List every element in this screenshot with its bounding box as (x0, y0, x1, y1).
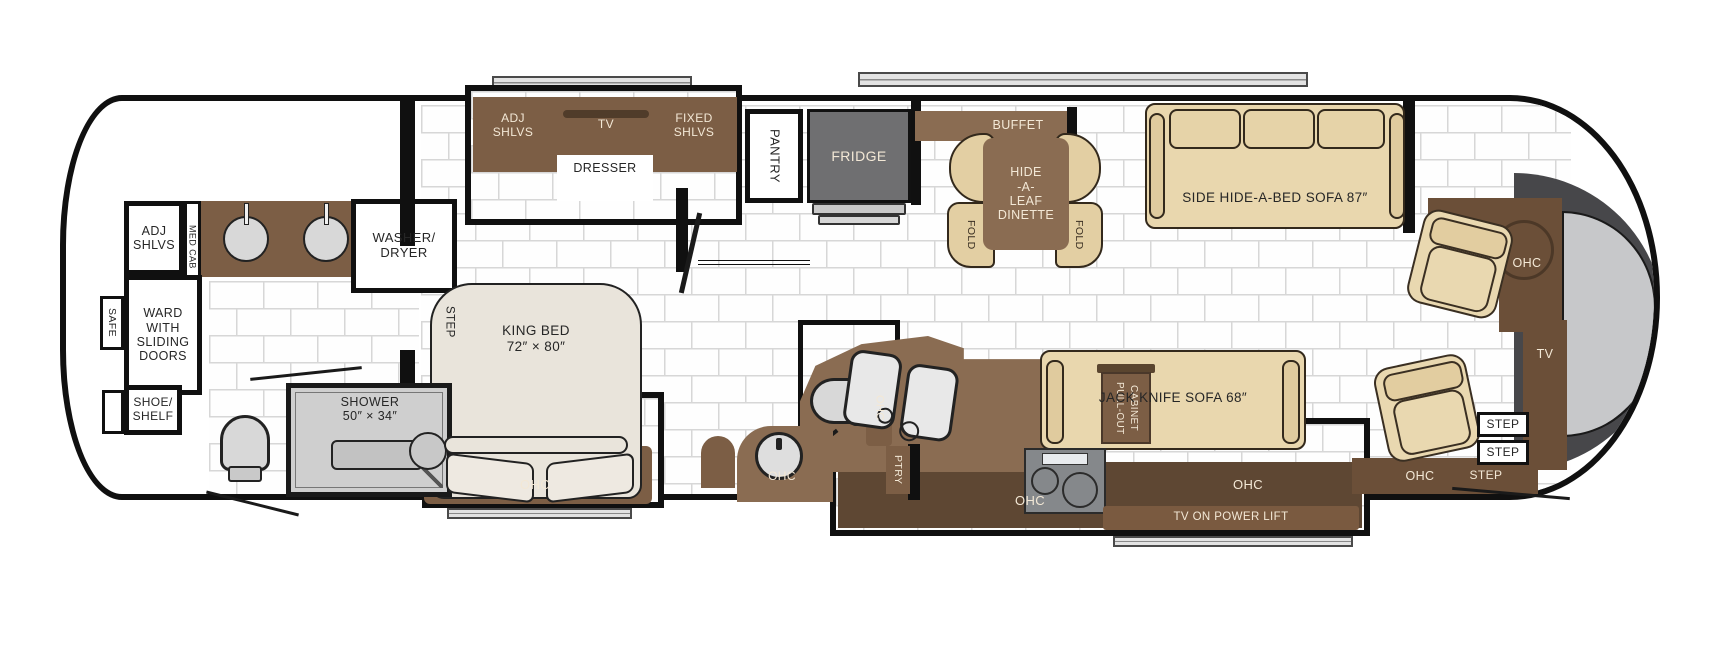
burner-icon (1062, 472, 1098, 508)
kitchen-sink (841, 346, 966, 445)
step-box-label: STEP (1477, 440, 1529, 465)
rear-wall-box (102, 390, 124, 434)
bed-ohc-label: OHC (505, 476, 565, 494)
washer-dryer-label: WASHER/ DRYER (351, 199, 457, 293)
pantry-label: PANTRY (745, 109, 803, 203)
shower-label: SHOWER 50″ × 34″ (300, 391, 440, 427)
shower-seat-icon (409, 432, 447, 470)
faucet-icon (324, 203, 329, 225)
burner-icon (1031, 467, 1059, 495)
hide-a-bed-sofa-label: SIDE HIDE-A-BED SOFA 87″ (1160, 188, 1390, 208)
rear-vanity-counter (201, 201, 351, 277)
cockpit-ohc-label: OHC (1497, 254, 1557, 272)
tv-power-lift-label: TV ON POWER LIFT (1103, 506, 1359, 530)
king-bed-label: KING BED 72″ × 80″ (460, 318, 612, 360)
half-bath-ohc-label: OHC (866, 370, 892, 446)
fridge-label: FRIDGE (807, 109, 911, 203)
safe-label: SAFE (100, 296, 124, 350)
ptry-label: PTRY (886, 446, 910, 494)
jack-knife-sofa-label: JACK KNIFE SOFA 68″ (1070, 388, 1276, 408)
fridge-tray (812, 203, 906, 215)
floorplan-canvas: SAFE ADJ SHLVS MED CAB WASHER/ DRYER WAR… (0, 0, 1728, 670)
sofa-back-cushion (1243, 109, 1315, 149)
sofa-arm (1389, 113, 1405, 219)
bedroom-adj-shlvs-label: ADJ SHLVS (477, 105, 549, 147)
sofa-back-cushion (1169, 109, 1241, 149)
slide-rail-bed-bottom (447, 508, 632, 519)
cockpit-tv-panel (1523, 320, 1567, 470)
dresser-label: DRESSER (549, 160, 661, 176)
fridge-tray (818, 215, 900, 225)
bedroom-tv-label: TV (586, 116, 626, 134)
sofa-ohc-label: OHC (1218, 476, 1278, 494)
toilet-base (228, 466, 262, 482)
shoe-shelf-label: SHOE/ SHELF (124, 385, 182, 435)
dinette-label: HIDE -A- LEAF DINETTE (983, 142, 1069, 246)
pull-out-cabinet-label: PULL-OUT CABINET (1101, 372, 1151, 444)
faucet-icon (776, 438, 782, 450)
cooktop-controls (1042, 453, 1088, 465)
toilet-icon (220, 415, 270, 471)
slide-rail-kitchen-bottom (1113, 536, 1353, 547)
slide-rail-galley-top (858, 72, 1308, 87)
vanity-side-cabinet (701, 436, 735, 488)
bed-foot-roll (444, 436, 628, 454)
hide-a-bed-sofa (1145, 103, 1405, 229)
sofa-arm (1282, 360, 1300, 444)
kitchen-ohc-label: OHC (998, 492, 1062, 510)
buffet-label: BUFFET (975, 116, 1061, 134)
step-box-label: STEP (1477, 412, 1529, 437)
sofa-arm (1046, 360, 1064, 444)
passenger-seat (1371, 351, 1483, 464)
entry-ohc-label: OHC (1392, 466, 1448, 486)
bedroom-step-label: STEP (438, 296, 460, 348)
towel-bar-line (698, 260, 810, 265)
sofa-back-cushion (1317, 109, 1385, 149)
faucet-icon (244, 203, 249, 225)
cockpit-tv-label: TV (1527, 346, 1563, 362)
entry-step-label: STEP (1456, 466, 1516, 486)
bedroom-cabinet-wing (653, 157, 737, 172)
wardrobe-label: WARD WITH SLIDING DOORS (124, 275, 202, 395)
vanity-ohc-label: OHC (747, 468, 817, 486)
bedroom-cabinet-wing (473, 157, 557, 172)
fixed-shlvs-label: FIXED SHLVS (656, 105, 732, 147)
rear-adj-shelves-label: ADJ SHLVS (124, 201, 184, 275)
